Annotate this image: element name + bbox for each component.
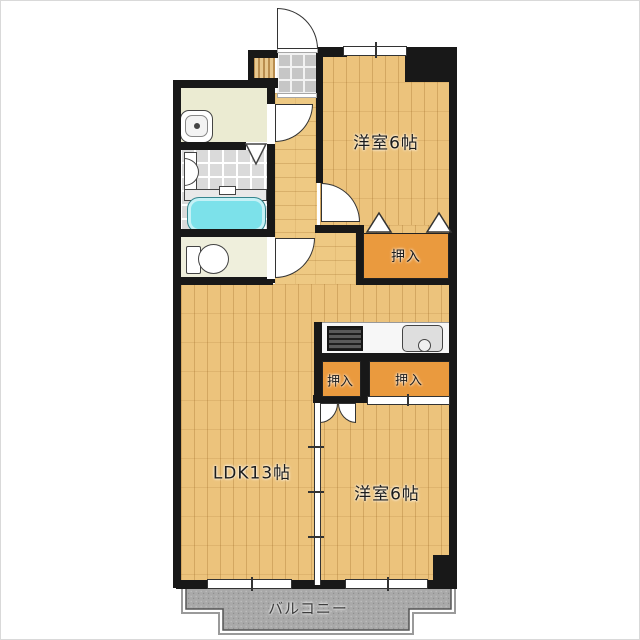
closet-mid-left-label: 押入 [327, 371, 353, 390]
closet-sliding-door-icon [367, 396, 450, 405]
balcony-label: バルコニー [268, 598, 348, 619]
bathtub-handle [219, 186, 236, 195]
bedroom-bottom-label: 洋室6帖 [354, 480, 420, 505]
wall-segment [173, 80, 251, 88]
sink-drain [418, 339, 431, 352]
wall-segment [314, 353, 453, 361]
closet-top-label: 押入 [391, 246, 421, 266]
partition-tick [308, 446, 324, 448]
washbasin-drain [194, 123, 200, 129]
wood-step [253, 58, 275, 78]
wall-segment [173, 277, 273, 285]
door-opening [246, 142, 267, 150]
wall-segment [449, 47, 457, 588]
wall-segment [173, 80, 181, 588]
ldk-label: LDK13帖 [213, 459, 291, 484]
wall-segment [248, 56, 254, 80]
entrance-tile [277, 53, 318, 93]
partition-tick [308, 491, 324, 493]
partition-tick [308, 536, 324, 538]
entrance-step-line [277, 93, 317, 98]
sliding-door-tick [407, 394, 409, 406]
floor-plan: 洋室6帖 押入 押入 押入 LDK13帖 洋室6帖 バルコニー [0, 0, 640, 640]
bathtub-icon [187, 197, 266, 233]
front-door-swing-icon [277, 8, 318, 49]
window [207, 579, 292, 589]
window-tick [387, 577, 389, 591]
closet-mid-right-label: 押入 [395, 370, 423, 389]
toilet-bowl-icon [198, 244, 229, 274]
sliding-partition-icon [314, 403, 321, 585]
door-opening [267, 237, 275, 279]
bedroom-top-label: 洋室6帖 [353, 129, 419, 154]
wall-segment [316, 50, 323, 183]
gas-stove-icon [327, 326, 363, 351]
wall-segment [180, 229, 270, 237]
wall-segment [180, 142, 246, 150]
window-tick [375, 42, 377, 58]
window-tick [251, 577, 253, 591]
wall-segment [314, 322, 322, 403]
door-opening [267, 104, 275, 144]
